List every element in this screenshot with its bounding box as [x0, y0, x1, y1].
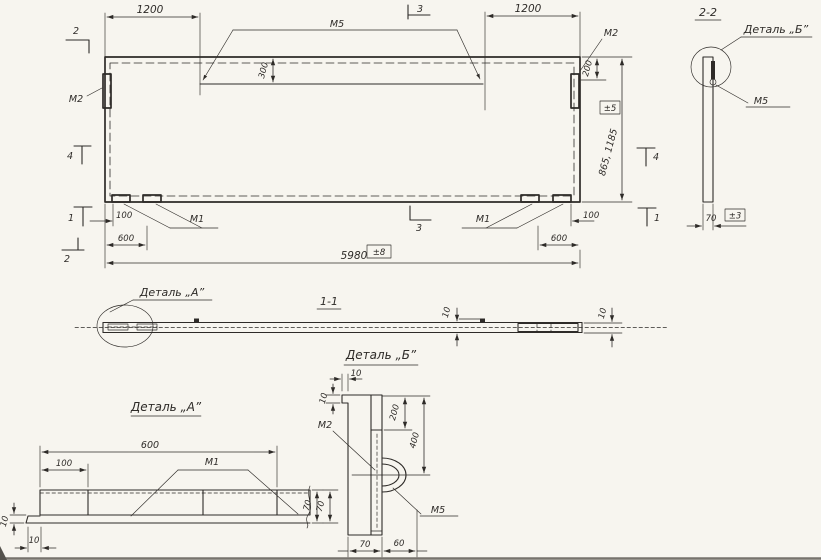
tolerance-label: ±8	[373, 248, 386, 258]
dim-label: 70	[302, 499, 314, 512]
callout-text: Деталь „А”	[139, 286, 205, 299]
section-1-1: 1-1 Деталь „А” 10	[75, 286, 668, 347]
dim-label: 10	[351, 369, 362, 379]
tolerance-label: ±3	[729, 212, 742, 222]
dim-1200-left: 1200	[105, 4, 200, 95]
dim-label: 600	[551, 234, 567, 244]
marker-1-left: 1	[68, 207, 92, 226]
dim-600: 600	[40, 440, 277, 487]
blueprint-page: 1200 1200 М5 300 М2 М2	[0, 0, 821, 560]
dim-label: 1200	[137, 4, 164, 16]
detail-title: Деталь „А”	[130, 400, 202, 414]
section-title: 1-1	[320, 295, 338, 308]
dim-100: 100	[42, 459, 88, 487]
section-markers: 2 4 1 2 3 3 4	[62, 4, 660, 265]
marker-label: 1	[654, 213, 660, 224]
marker-2-top: 2	[66, 26, 89, 53]
marker-label: 4	[653, 152, 659, 163]
main-view: 1200 1200 М5 300 М2 М2	[62, 3, 660, 268]
marker-label: 2	[64, 254, 70, 265]
loop-edge-view	[711, 61, 715, 79]
callout-text: Деталь „Б”	[743, 23, 809, 36]
detail-circle	[97, 305, 153, 347]
dim-10-right: 10	[584, 307, 622, 347]
label-text: М5	[754, 96, 768, 107]
callout-m1-right: М1	[462, 204, 563, 228]
section-2-2: 2-2 Деталь „Б” М5 70 ±3	[687, 6, 812, 230]
section-title: 2-2	[699, 6, 717, 19]
detail-b: Деталь „Б” 10 10	[315, 348, 458, 557]
dim-label: 5980	[341, 250, 368, 262]
label-m2: М2	[318, 420, 375, 470]
flange-tip	[26, 516, 40, 523]
dim-label: 200	[581, 59, 595, 77]
label-text: М2	[318, 420, 332, 431]
loop-stub-left	[194, 319, 199, 324]
dim-400: 400	[408, 398, 424, 473]
bar-profile	[26, 486, 311, 528]
marker-label: 3	[417, 4, 423, 15]
dim-label: 100	[583, 211, 599, 221]
scan-corner	[0, 546, 7, 560]
dim-label: 70	[706, 214, 717, 224]
marker-label: 1	[68, 213, 74, 224]
dim-10-lip-width: 10	[330, 369, 362, 391]
plate-m2-right	[571, 74, 579, 108]
label-text: М1	[190, 214, 204, 225]
dim-label: 300	[257, 61, 271, 79]
dim-proj-label: 60	[394, 539, 405, 549]
label-m2-left: М2	[69, 88, 102, 105]
panel-outline	[105, 57, 580, 202]
dim-200-edge: 200	[581, 59, 606, 80]
label-text: М5	[431, 505, 445, 516]
strip-section	[75, 319, 668, 333]
dim-200: 200	[382, 396, 430, 430]
label-text: М2	[604, 28, 618, 39]
dim-label: 400	[408, 431, 422, 449]
dim-600-right: 600	[538, 226, 578, 250]
panel-drawing: 1200 1200 М5 300 М2 М2	[0, 0, 821, 560]
dim-label: 600	[141, 440, 159, 451]
dim-600-left: 600	[107, 226, 147, 250]
dim-label: 865, 1185	[597, 128, 620, 178]
dim-label: 10	[0, 515, 11, 528]
dim-label: 200	[388, 403, 402, 421]
dim-70-thickness: 70 ±3	[687, 204, 746, 230]
callout-m1-left: М1	[124, 204, 218, 228]
dim-label: 10	[441, 306, 453, 319]
dim-10-lip-height: 10	[318, 384, 340, 414]
callout-m1: М1	[131, 457, 298, 516]
dim-100-left: 100	[90, 204, 132, 226]
dim-10-left: 10	[441, 306, 484, 346]
dim-label: 10	[29, 536, 40, 546]
detail-title: Деталь „Б”	[345, 348, 417, 362]
marker-label: 4	[67, 151, 73, 162]
marker-2-bottom: 2	[62, 238, 84, 265]
dim-70-loop: 70	[315, 490, 338, 523]
marker-label: 2	[73, 26, 79, 37]
marker-3-top: 3	[408, 4, 430, 19]
callout-m5: М5	[203, 19, 480, 80]
dim-height: 865, 1185 ±5	[582, 57, 632, 202]
label-m5: М5	[330, 19, 344, 30]
dim-label: 10	[597, 307, 609, 320]
marker-4-right: 4	[637, 148, 659, 166]
tolerance-label: ±5	[604, 104, 617, 114]
marker-3-bottom: 3	[410, 206, 431, 234]
label-m5-section: М5	[716, 85, 790, 107]
label-text: М1	[476, 214, 490, 225]
dim-label: 1200	[515, 3, 542, 15]
dim-overall: 5980 ±8	[105, 204, 580, 268]
marker-label: 3	[416, 223, 422, 234]
label-m5: М5	[393, 488, 458, 516]
label-text: М2	[69, 94, 83, 105]
dim-10-flange: 10	[0, 503, 26, 535]
detail-a-callout: Деталь „А”	[110, 286, 212, 312]
marker-4-left: 4	[67, 146, 91, 164]
marker-1-right: 1	[638, 208, 660, 226]
dim-label: 70	[315, 500, 327, 513]
dim-10-overhang: 10	[15, 527, 56, 552]
dim-label: 600	[118, 234, 134, 244]
panel-hidden-inset	[110, 63, 574, 196]
dim-300: 300	[257, 59, 273, 82]
detail-a: Деталь „А” 600 100 М1	[0, 400, 323, 552]
dim-label: 100	[56, 459, 72, 469]
dim-width-label: 70	[360, 540, 371, 550]
dim-label: 100	[116, 211, 132, 221]
dim-100-right: 100	[571, 204, 599, 226]
label-text: М1	[205, 457, 219, 468]
detail-b-callout: Деталь „Б”	[721, 23, 812, 50]
